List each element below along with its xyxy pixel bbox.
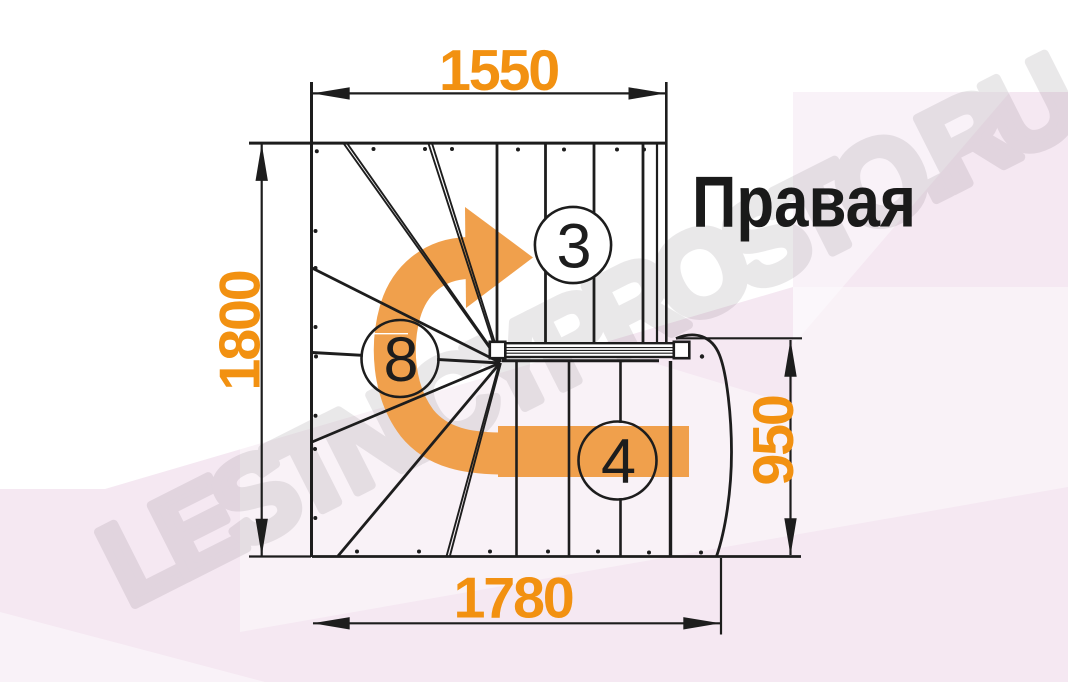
svg-text:950: 950 [742,396,806,486]
svg-text:8: 8 [383,325,418,395]
svg-text:1800: 1800 [209,271,273,390]
svg-text:4: 4 [601,427,636,497]
svg-text:3: 3 [556,212,591,282]
svg-text:1550: 1550 [439,39,558,103]
svg-text:Правая: Правая [692,163,916,243]
svg-text:1780: 1780 [453,567,572,631]
